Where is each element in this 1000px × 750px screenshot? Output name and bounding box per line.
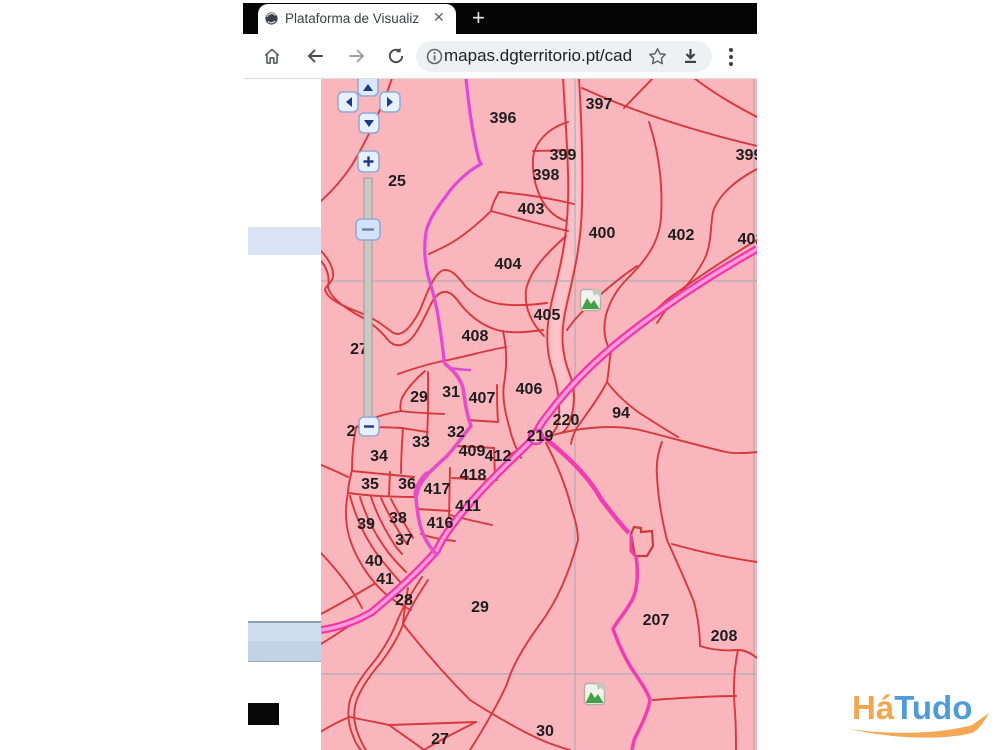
svg-text:33: 33 (412, 434, 430, 451)
svg-text:29: 29 (471, 599, 489, 616)
svg-text:396: 396 (490, 110, 517, 127)
svg-text:38: 38 (389, 510, 407, 527)
svg-text:30: 30 (536, 723, 554, 740)
svg-text:400: 400 (589, 225, 616, 242)
svg-text:27: 27 (431, 731, 449, 748)
svg-text:402: 402 (738, 231, 757, 248)
svg-text:402: 402 (668, 227, 695, 244)
svg-text:403: 403 (518, 201, 545, 218)
svg-text:36: 36 (398, 476, 416, 493)
svg-text:31: 31 (442, 384, 460, 401)
svg-text:94: 94 (612, 405, 630, 422)
svg-text:405: 405 (534, 307, 561, 324)
svg-text:39: 39 (357, 516, 375, 533)
svg-text:219: 219 (527, 428, 554, 445)
svg-text:34: 34 (370, 448, 388, 465)
svg-text:32: 32 (447, 424, 465, 441)
svg-text:418: 418 (460, 467, 487, 484)
svg-text:207: 207 (643, 612, 670, 629)
svg-text:417: 417 (424, 481, 451, 498)
svg-text:28: 28 (395, 592, 413, 609)
svg-text:29: 29 (410, 389, 428, 406)
svg-text:41: 41 (376, 571, 394, 588)
svg-text:399: 399 (736, 147, 757, 164)
svg-text:409: 409 (459, 443, 486, 460)
svg-text:411: 411 (455, 498, 481, 515)
svg-text:406: 406 (516, 381, 543, 398)
svg-text:399: 399 (550, 147, 577, 164)
svg-text:412: 412 (485, 448, 512, 465)
svg-text:37: 37 (395, 532, 413, 549)
svg-text:2: 2 (347, 423, 356, 440)
svg-text:397: 397 (586, 96, 613, 113)
svg-text:25: 25 (388, 173, 406, 190)
svg-text:220: 220 (553, 412, 580, 429)
svg-text:208: 208 (711, 628, 738, 645)
svg-text:398: 398 (533, 167, 560, 184)
svg-text:408: 408 (462, 328, 489, 345)
svg-text:407: 407 (469, 390, 496, 407)
svg-text:416: 416 (427, 515, 454, 532)
svg-text:404: 404 (495, 256, 522, 273)
svg-text:35: 35 (361, 476, 379, 493)
svg-text:40: 40 (365, 553, 383, 570)
